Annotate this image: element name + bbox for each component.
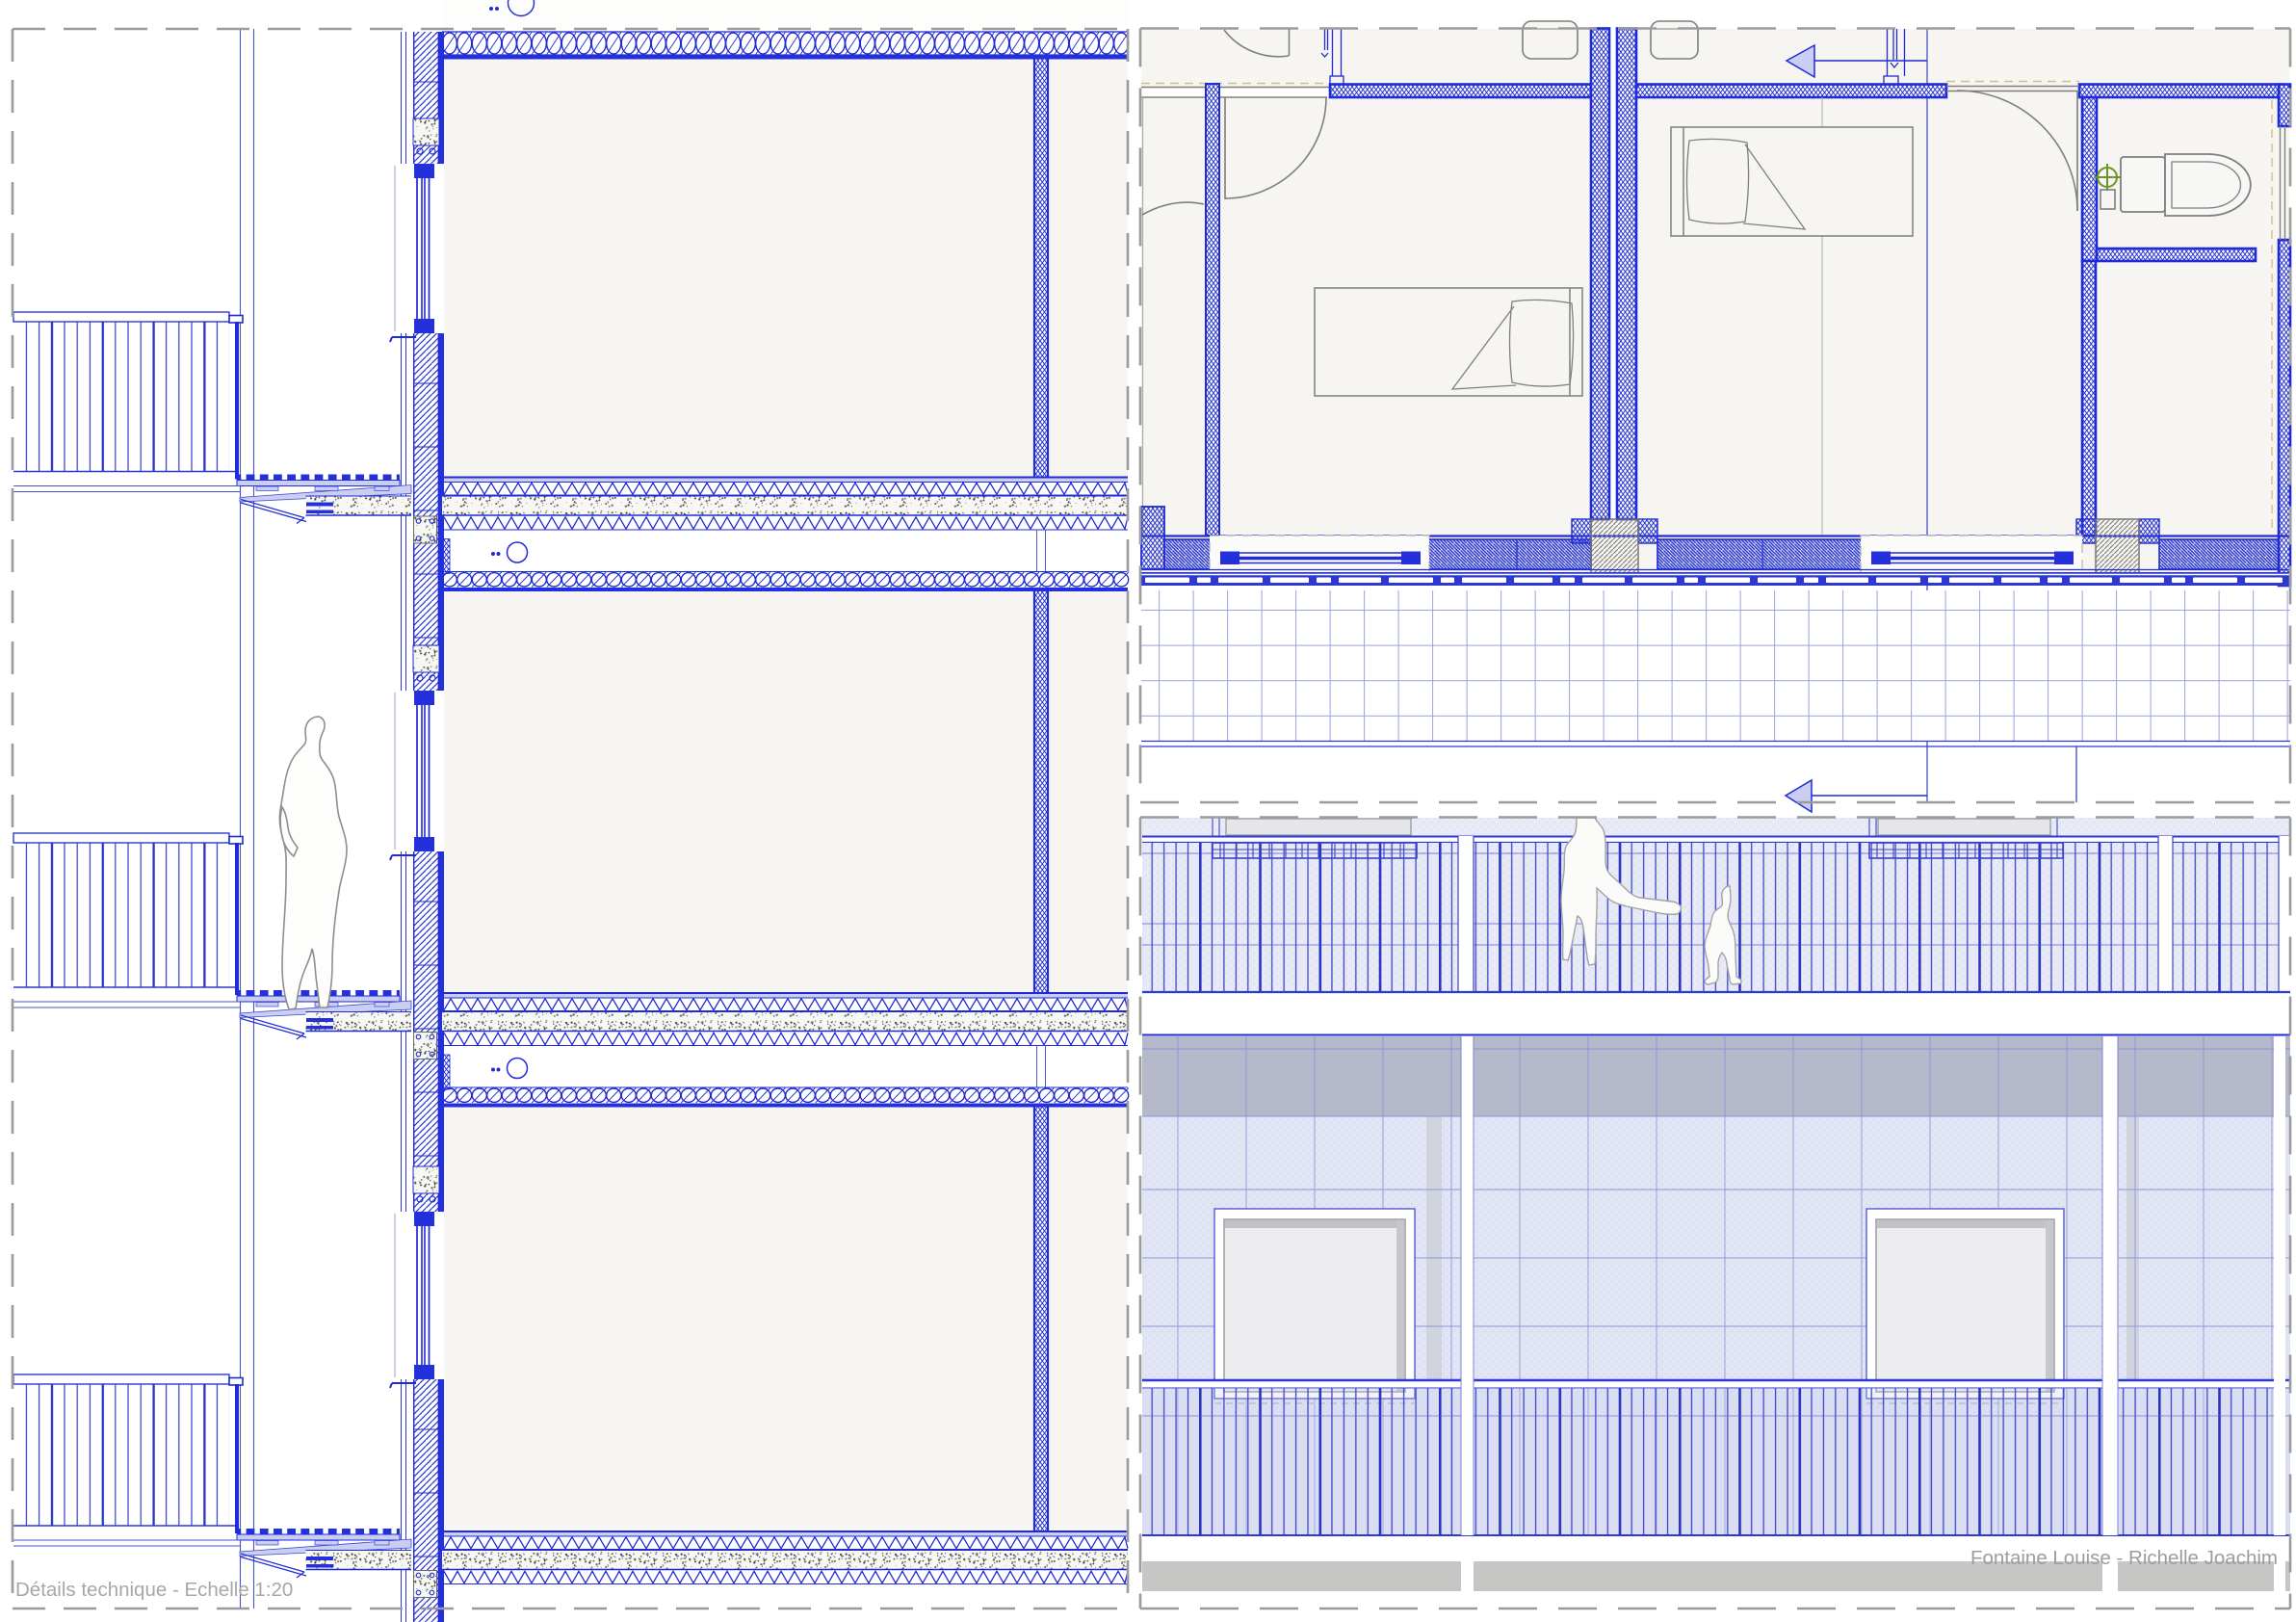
svg-text:Détails technique - Echelle 1:: Détails technique - Echelle 1:20 [15, 1579, 293, 1601]
svg-text:Fontaine Louise - Richelle Joa: Fontaine Louise - Richelle Joachim [1970, 1547, 2278, 1569]
